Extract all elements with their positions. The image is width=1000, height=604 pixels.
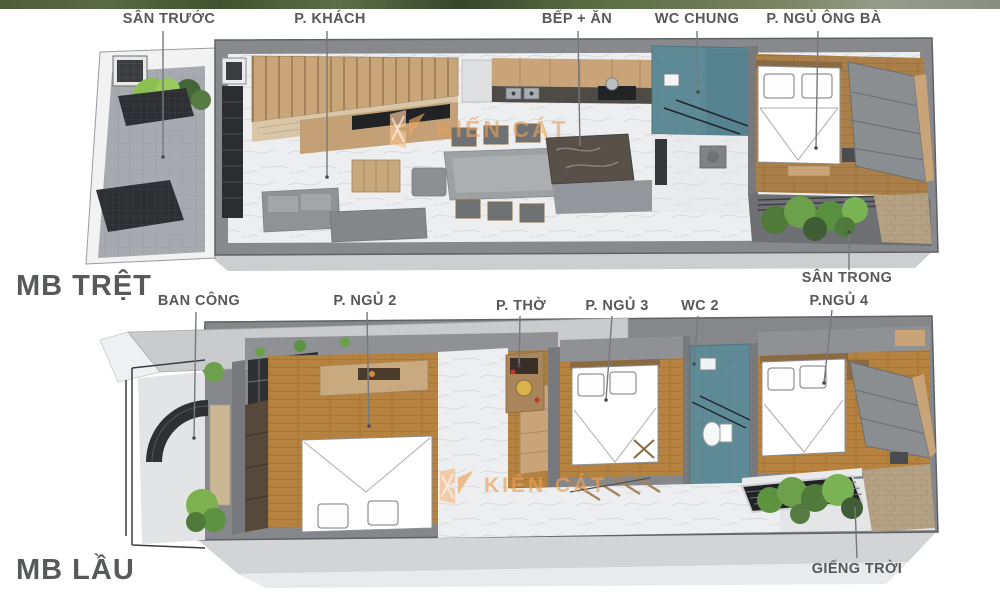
entry-slatted-door (222, 58, 246, 218)
label-p-ngu-3: P. NGỦ 3 (585, 299, 648, 314)
label-ban-cong: BAN CÔNG (158, 294, 240, 309)
room-wc-2 (690, 344, 750, 494)
floor-plan-sheet: SÂN TRƯỚC P. KHÁCH BẾP + ĂN WC CHUNG P. … (0, 0, 1000, 604)
courtyard-front (86, 48, 215, 264)
label-bep-an: BẾP + ĂN (542, 12, 612, 27)
label-p-ngu-ong-ba: P. NGỦ ÔNG BÀ (766, 12, 881, 27)
label-p-ngu-4: P.NGỦ 4 (810, 294, 869, 309)
title-mb-lau: MB LẦU (16, 556, 135, 585)
room-master-bedroom (756, 54, 934, 196)
room-wc-chung (652, 46, 754, 136)
bed-2 (302, 436, 432, 532)
label-wc-2: WC 2 (681, 299, 719, 314)
label-p-ngu-2: P. NGỦ 2 (333, 294, 396, 309)
label-san-trong: SÂN TRONG (802, 271, 893, 286)
label-wc-chung: WC CHUNG (655, 12, 740, 27)
title-mb-tret: MB TRỆT (16, 272, 152, 301)
label-p-khach: P. KHÁCH (294, 12, 365, 27)
room-bedroom-3 (560, 336, 690, 478)
wardrobe-master (848, 62, 934, 182)
courtyard-inner (748, 193, 932, 246)
kitchen-counter (462, 58, 662, 104)
label-gieng-troi: GIẾNG TRỜI (812, 562, 902, 577)
ground-floor-plan (86, 38, 938, 271)
bed-4 (762, 359, 845, 456)
bed-master (758, 66, 840, 164)
room-bedroom-4 (758, 326, 936, 474)
label-p-tho: P. THỜ (496, 299, 546, 314)
label-san-truoc: SÂN TRƯỚC (123, 12, 215, 27)
